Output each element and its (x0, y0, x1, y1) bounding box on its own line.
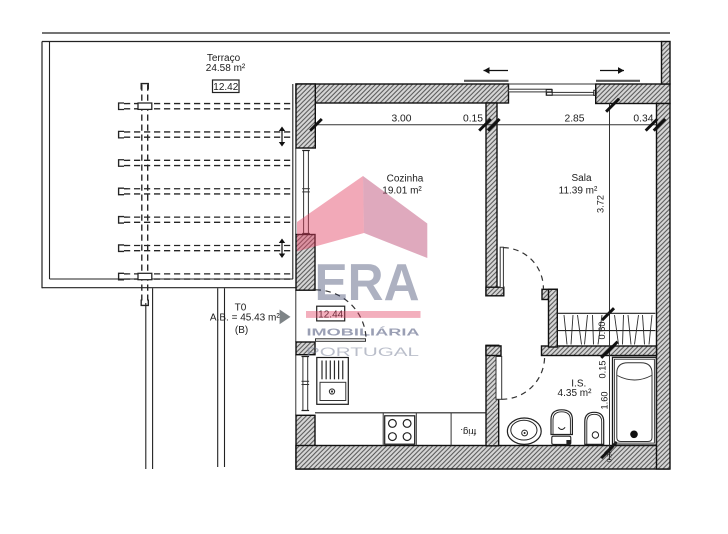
svg-text:0.38: 0.38 (607, 449, 614, 462)
svg-text:Sala: Sala (571, 173, 591, 184)
svg-text:24.58 m²: 24.58 m² (206, 63, 246, 74)
svg-text:3.00: 3.00 (391, 113, 411, 124)
svg-text:0.34: 0.34 (633, 113, 653, 124)
svg-text:0.15: 0.15 (597, 361, 607, 379)
svg-text:4.35 m²: 4.35 m² (558, 388, 593, 399)
svg-text:A.B. = 45.43 m²: A.B. = 45.43 m² (210, 313, 280, 324)
svg-text:0.15: 0.15 (463, 113, 483, 124)
svg-text:3.72: 3.72 (596, 195, 606, 213)
svg-text:1.60: 1.60 (600, 392, 610, 410)
svg-text:frig.: frig. (460, 426, 476, 437)
svg-text:2.85: 2.85 (564, 113, 584, 124)
svg-text:12.42: 12.42 (213, 82, 238, 93)
svg-text:11.39 m²: 11.39 m² (559, 186, 598, 197)
svg-text:19.01 m²: 19.01 m² (382, 185, 422, 196)
svg-text:Cozinha: Cozinha (387, 174, 424, 185)
svg-text:PORTUGAL: PORTUGAL (306, 345, 420, 359)
svg-text:0.60: 0.60 (597, 322, 607, 340)
svg-text:(B): (B) (235, 325, 248, 336)
svg-text:ERA: ERA (315, 253, 420, 311)
svg-text:IMOBILIÁRIA: IMOBILIÁRIA (307, 325, 421, 338)
